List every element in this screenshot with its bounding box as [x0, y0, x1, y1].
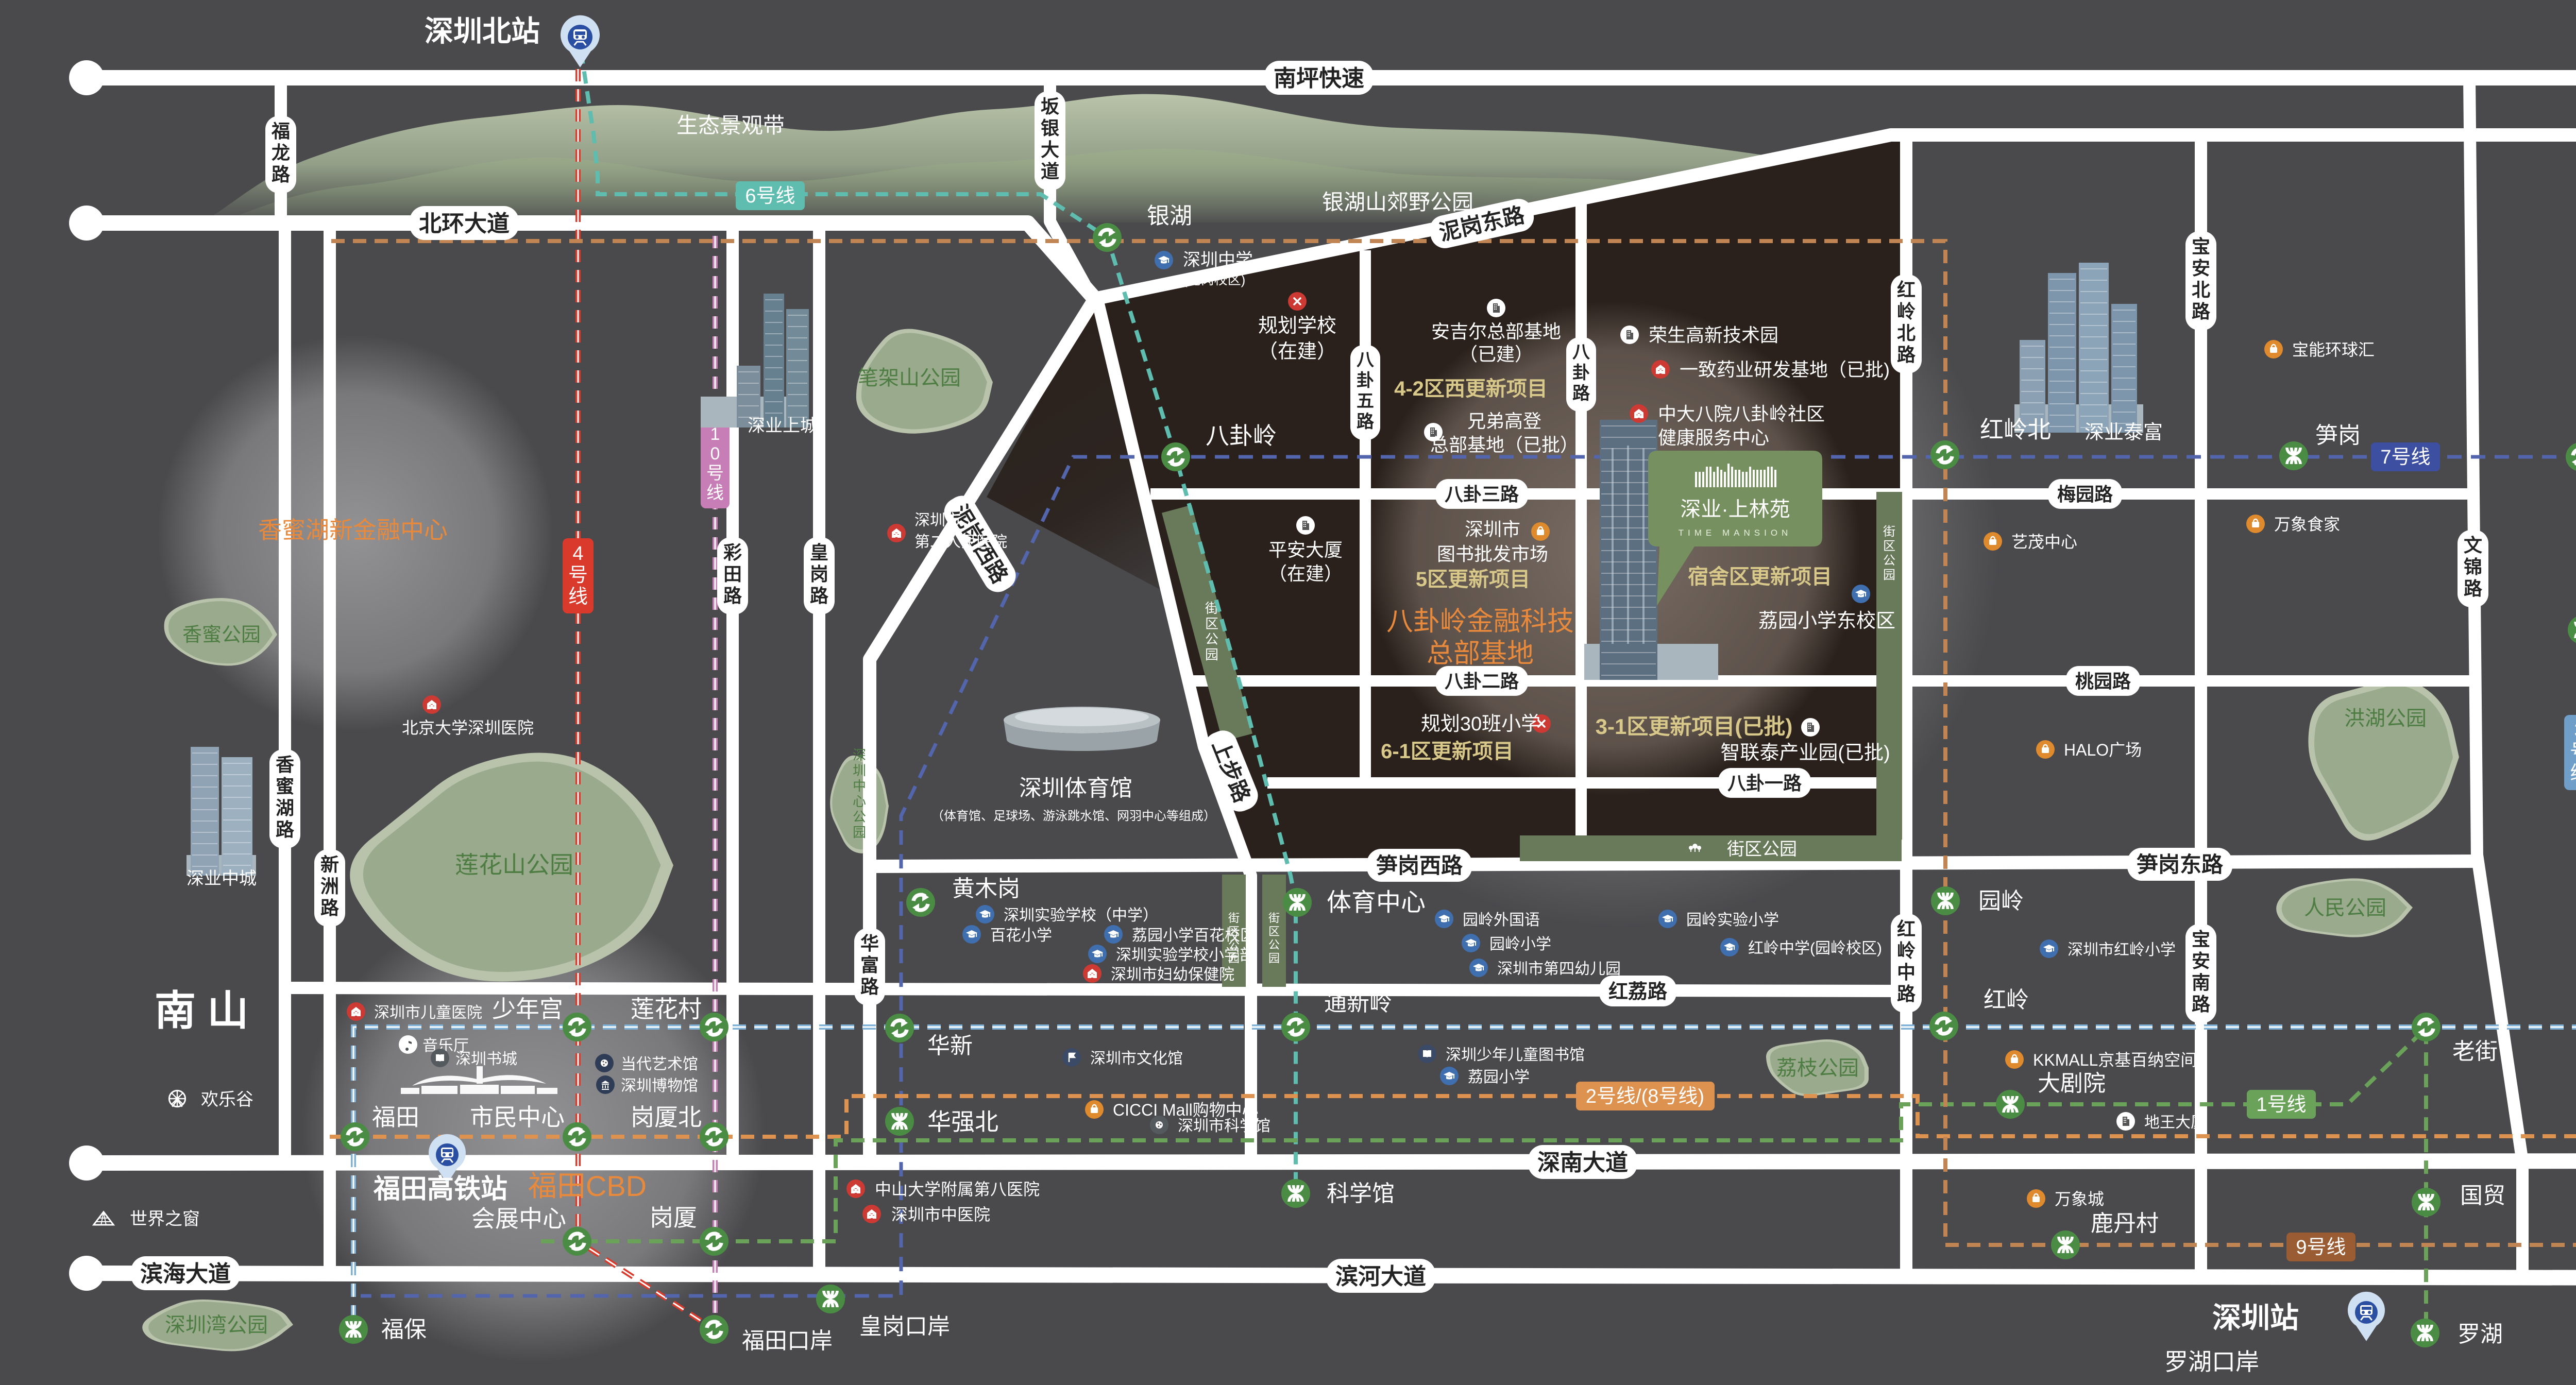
svg-text:区: 区: [1268, 925, 1280, 938]
svg-text:线: 线: [568, 586, 588, 608]
svg-text:八卦一路: 八卦一路: [1727, 773, 1802, 794]
svg-text:罗湖口岸: 罗湖口岸: [2164, 1348, 2259, 1375]
svg-text:北京大学深圳医院: 北京大学深圳医院: [402, 719, 534, 737]
svg-text:通新岭: 通新岭: [1324, 990, 1392, 1016]
svg-text:深: 深: [853, 747, 866, 763]
svg-text:南: 南: [2192, 972, 2210, 993]
svg-text:鹿丹村: 鹿丹村: [2091, 1211, 2159, 1236]
svg-text:莲花山公园: 莲花山公园: [455, 851, 573, 878]
svg-text:福田高铁站: 福田高铁站: [373, 1174, 507, 1204]
svg-text:道: 道: [1041, 161, 1059, 182]
svg-text:深圳市中医院: 深圳市中医院: [891, 1205, 990, 1224]
svg-text:大剧院: 大剧院: [2038, 1071, 2106, 1096]
svg-text:路: 路: [320, 897, 340, 918]
svg-text:深圳少年儿童图书馆: 深圳少年儿童图书馆: [1446, 1047, 1585, 1064]
svg-text:街: 街: [1883, 525, 1895, 539]
svg-text:科学馆: 科学馆: [1327, 1181, 1395, 1206]
svg-text:八: 八: [1357, 350, 1375, 370]
svg-text:五: 五: [1357, 391, 1374, 411]
svg-text:欢乐谷: 欢乐谷: [201, 1090, 253, 1109]
svg-text:6-1区更新项目: 6-1区更新项目: [1381, 740, 1514, 763]
svg-text:CICCI Mall购物中心: CICCI Mall购物中心: [1113, 1101, 1259, 1119]
svg-text:红: 红: [1897, 918, 1916, 939]
svg-text:深圳市: 深圳市: [914, 512, 961, 529]
svg-text:红荔路: 红荔路: [1608, 981, 1668, 1003]
svg-text:洲: 洲: [320, 876, 339, 897]
svg-text:八: 八: [1572, 343, 1590, 362]
svg-text:富: 富: [860, 954, 879, 976]
svg-text:深南大道: 深南大道: [1537, 1150, 1628, 1175]
svg-text:区: 区: [1205, 616, 1218, 631]
svg-text:园岭: 园岭: [1978, 888, 2024, 914]
svg-text:黄木岗: 黄木岗: [952, 876, 1020, 901]
svg-text:地王大厦: 地王大厦: [2144, 1114, 2206, 1131]
svg-text:（体育馆、足球场、游泳跳水馆、网羽中心等组成）: （体育馆、足球场、游泳跳水馆、网羽中心等组成）: [931, 809, 1216, 823]
svg-text:深圳书城: 深圳书城: [455, 1051, 517, 1068]
svg-text:人民公园: 人民公园: [2304, 897, 2386, 919]
svg-text:园: 园: [853, 825, 866, 840]
svg-text:荔枝公园: 荔枝公园: [1776, 1057, 1859, 1080]
svg-text:大: 大: [1041, 139, 1059, 160]
svg-text:街: 街: [1228, 912, 1240, 925]
svg-text:深圳市第四幼儿园: 深圳市第四幼儿园: [1497, 961, 1621, 978]
svg-text:深圳实验学校（中学）: 深圳实验学校（中学）: [1004, 907, 1158, 924]
svg-text:福保: 福保: [381, 1317, 427, 1342]
svg-text:深圳市科学馆: 深圳市科学馆: [1178, 1118, 1270, 1135]
svg-text:公: 公: [853, 809, 866, 825]
svg-text:HALO广场: HALO广场: [2064, 741, 2142, 759]
svg-text:街区公园: 街区公园: [1727, 840, 1797, 859]
svg-text:中: 中: [1897, 962, 1916, 983]
svg-text:荔园小学百花校区: 荔园小学百花校区: [1132, 927, 1256, 944]
svg-text:园: 园: [1268, 952, 1280, 965]
svg-text:卦: 卦: [1572, 363, 1590, 383]
svg-text:红岭中学(园岭校区): 红岭中学(园岭校区): [1748, 940, 1882, 957]
svg-text:坂: 坂: [1041, 96, 1059, 117]
svg-text:八卦岭: 八卦岭: [1206, 422, 1277, 449]
svg-text:皇岗口岸: 皇岗口岸: [859, 1314, 950, 1339]
svg-text:一致药业研发基地（已批): 一致药业研发基地（已批): [1680, 359, 1890, 380]
svg-text:万象城: 万象城: [2055, 1190, 2104, 1208]
svg-text:南 山: 南 山: [155, 988, 248, 1034]
svg-text:荔园小学东校区: 荔园小学东校区: [1758, 610, 1895, 632]
svg-text:区: 区: [1883, 539, 1895, 553]
svg-text:银湖: 银湖: [1147, 203, 1192, 229]
svg-text:皇: 皇: [810, 542, 828, 563]
svg-text:香: 香: [276, 754, 294, 775]
svg-text:园岭实验小学: 园岭实验小学: [1686, 912, 1779, 929]
svg-text:岭: 岭: [1897, 301, 1916, 322]
svg-text:北: 北: [2192, 279, 2210, 300]
svg-text:笋岗东路: 笋岗东路: [2137, 852, 2224, 877]
svg-text:深圳湾公园: 深圳湾公园: [165, 1314, 268, 1337]
svg-text:洪湖公园: 洪湖公园: [2344, 707, 2427, 730]
svg-text:北环大道: 北环大道: [419, 211, 510, 236]
svg-text:第二人民医院: 第二人民医院: [914, 534, 1007, 551]
svg-text:体育中心: 体育中心: [1327, 889, 1426, 916]
svg-text:心: 心: [853, 794, 866, 809]
svg-text:4: 4: [572, 543, 583, 565]
svg-text:荣生高新技术园: 荣生高新技术园: [1649, 324, 1778, 346]
svg-text:深圳博物馆: 深圳博物馆: [621, 1078, 698, 1095]
svg-text:街: 街: [1268, 912, 1280, 925]
svg-text:公: 公: [1883, 554, 1895, 568]
svg-text:安: 安: [2192, 258, 2210, 279]
svg-text:KKMALL京基百纳空间: KKMALL京基百纳空间: [2033, 1051, 2197, 1069]
svg-text:公: 公: [1268, 938, 1280, 951]
svg-text:卦: 卦: [1357, 371, 1374, 390]
svg-text:荔园小学: 荔园小学: [1468, 1069, 1530, 1086]
svg-text:莲花村: 莲花村: [631, 996, 702, 1022]
svg-text:滨海大道: 滨海大道: [140, 1261, 231, 1287]
svg-text:路: 路: [2192, 301, 2211, 322]
svg-text:彩: 彩: [723, 542, 742, 563]
svg-text:福: 福: [271, 121, 290, 142]
svg-text:滨河大道: 滨河大道: [1335, 1264, 1426, 1289]
svg-text:TIME MANSION: TIME MANSION: [1679, 528, 1792, 538]
svg-text:4-2区西更新项目: 4-2区西更新项目: [1394, 378, 1548, 400]
svg-text:南坪快速: 南坪快速: [1274, 66, 1364, 91]
svg-text:园岭小学: 园岭小学: [1489, 936, 1551, 953]
svg-text:当代艺术馆: 当代艺术馆: [621, 1056, 698, 1073]
svg-text:深业·上林苑: 深业·上林苑: [1680, 498, 1790, 521]
svg-text:深业上城: 深业上城: [748, 416, 818, 436]
svg-text:红岭北: 红岭北: [1980, 416, 2051, 443]
svg-text:岗厦: 岗厦: [650, 1204, 697, 1231]
svg-text:深圳中学: 深圳中学: [1183, 250, 1253, 270]
svg-text:0: 0: [710, 444, 720, 464]
svg-text:笋岗西路: 笋岗西路: [1376, 853, 1463, 878]
svg-text:中山大学附属第八医院: 中山大学附属第八医院: [875, 1180, 1040, 1199]
svg-text:福田CBD: 福田CBD: [528, 1170, 647, 1202]
svg-text:9号线: 9号线: [2296, 1237, 2346, 1258]
svg-text:宝: 宝: [2192, 929, 2210, 950]
svg-text:万象食家: 万象食家: [2274, 515, 2340, 534]
svg-text:老街: 老街: [2452, 1039, 2498, 1064]
svg-text:桃园路: 桃园路: [2075, 671, 2131, 692]
svg-text:华强北: 华强北: [927, 1108, 998, 1135]
svg-text:会展中心: 会展中心: [471, 1205, 566, 1232]
svg-text:岗厦北: 岗厦北: [631, 1104, 702, 1131]
svg-text:深圳市红岭小学: 深圳市红岭小学: [2067, 942, 2176, 959]
svg-text:路: 路: [272, 164, 291, 185]
svg-text:市民中心: 市民中心: [470, 1104, 565, 1131]
svg-text:香蜜公园: 香蜜公园: [182, 624, 261, 646]
svg-text:2号线/(8号线): 2号线/(8号线): [1586, 1086, 1704, 1107]
svg-text:路: 路: [1572, 384, 1590, 403]
svg-text:路: 路: [276, 819, 295, 840]
svg-text:宝: 宝: [2192, 236, 2210, 257]
svg-text:路: 路: [860, 976, 879, 997]
svg-text:路: 路: [1897, 983, 1916, 1004]
svg-text:笋岗: 笋岗: [2315, 423, 2361, 448]
svg-text:宿舍区更新项目: 宿舍区更新项目: [1688, 566, 1832, 588]
svg-text:龙: 龙: [272, 142, 290, 163]
svg-text:园岭外国语: 园岭外国语: [1463, 912, 1540, 929]
svg-text:岗: 岗: [810, 563, 828, 585]
svg-text:华新: 华新: [927, 1033, 973, 1058]
svg-text:艺茂中心: 艺茂中心: [2011, 533, 2077, 551]
svg-text:世界之窗: 世界之窗: [130, 1209, 200, 1229]
svg-text:(泥岗校区): (泥岗校区): [1183, 272, 1245, 287]
svg-text:银: 银: [1041, 117, 1059, 139]
svg-text:路: 路: [2192, 994, 2211, 1015]
svg-text:路: 路: [1357, 412, 1375, 432]
svg-text:6号线: 6号线: [745, 185, 795, 207]
svg-text:公: 公: [1205, 631, 1218, 647]
svg-text:园: 园: [1205, 647, 1218, 662]
svg-text:锦: 锦: [2464, 556, 2482, 577]
svg-text:圳: 圳: [853, 763, 866, 778]
svg-text:文: 文: [2464, 535, 2482, 556]
svg-text:路: 路: [810, 585, 829, 606]
svg-text:园: 园: [1883, 568, 1895, 582]
svg-text:新: 新: [320, 854, 339, 875]
svg-text:号: 号: [568, 565, 588, 586]
svg-text:安: 安: [2192, 950, 2210, 971]
svg-text:香蜜湖新金融中心: 香蜜湖新金融中心: [258, 517, 448, 543]
svg-text:宝能环球汇: 宝能环球汇: [2292, 340, 2375, 359]
svg-text:北: 北: [1897, 322, 1916, 344]
svg-text:蜜: 蜜: [276, 776, 294, 797]
svg-text:银湖山郊野公园: 银湖山郊野公园: [1322, 190, 1473, 214]
svg-text:深圳市妇幼保健院: 深圳市妇幼保健院: [1111, 966, 1234, 983]
svg-text:深业泰富: 深业泰富: [2084, 422, 2163, 443]
svg-text:八卦三路: 八卦三路: [1445, 484, 1519, 505]
svg-text:号: 号: [2570, 741, 2576, 763]
svg-text:号: 号: [706, 464, 724, 483]
svg-text:3: 3: [2574, 720, 2576, 741]
svg-text:福田口岸: 福田口岸: [742, 1328, 833, 1354]
svg-text:深圳站: 深圳站: [2212, 1302, 2299, 1334]
svg-text:路: 路: [2464, 578, 2483, 599]
svg-text:生态景观带: 生态景观带: [676, 113, 785, 138]
svg-text:深圳市文化馆: 深圳市文化馆: [1090, 1050, 1183, 1067]
svg-text:红: 红: [1897, 279, 1916, 300]
svg-text:路: 路: [1897, 344, 1916, 365]
svg-text:线: 线: [706, 483, 724, 503]
svg-text:深圳北站: 深圳北站: [425, 15, 540, 47]
svg-text:岭: 岭: [1897, 940, 1916, 961]
svg-text:八卦二路: 八卦二路: [1445, 671, 1519, 692]
svg-text:深业中城: 深业中城: [187, 869, 257, 888]
svg-text:深圳实验学校小学部: 深圳实验学校小学部: [1116, 947, 1255, 964]
svg-text:7号线: 7号线: [2380, 447, 2430, 468]
svg-text:1号线: 1号线: [2256, 1094, 2306, 1116]
svg-text:少年宫: 少年宫: [492, 996, 563, 1022]
svg-text:国贸: 国贸: [2460, 1183, 2505, 1208]
svg-text:路: 路: [723, 585, 742, 606]
svg-text:罗湖: 罗湖: [2458, 1322, 2503, 1347]
svg-text:智联泰产业园(已批): 智联泰产业园(已批): [1720, 742, 1890, 764]
svg-text:中: 中: [853, 778, 866, 794]
svg-text:深圳体育馆: 深圳体育馆: [1019, 776, 1132, 801]
svg-text:华: 华: [860, 933, 879, 954]
svg-text:红岭: 红岭: [1984, 987, 2029, 1013]
svg-text:规划30班小学: 规划30班小学: [1421, 713, 1540, 735]
svg-text:湖: 湖: [276, 797, 294, 818]
svg-text:5区更新项目: 5区更新项目: [1416, 568, 1530, 591]
svg-text:梅园路: 梅园路: [2057, 484, 2113, 505]
svg-text:3-1区更新项目(已批): 3-1区更新项目(已批): [1596, 714, 1793, 739]
svg-text:福田: 福田: [372, 1104, 419, 1131]
svg-text:田: 田: [723, 563, 742, 585]
svg-text:笔架山公园: 笔架山公园: [858, 367, 961, 389]
svg-text:百花小学: 百花小学: [990, 927, 1052, 944]
svg-text:线: 线: [2570, 763, 2576, 784]
svg-text:深圳市儿童医院: 深圳市儿童医院: [374, 1004, 482, 1021]
